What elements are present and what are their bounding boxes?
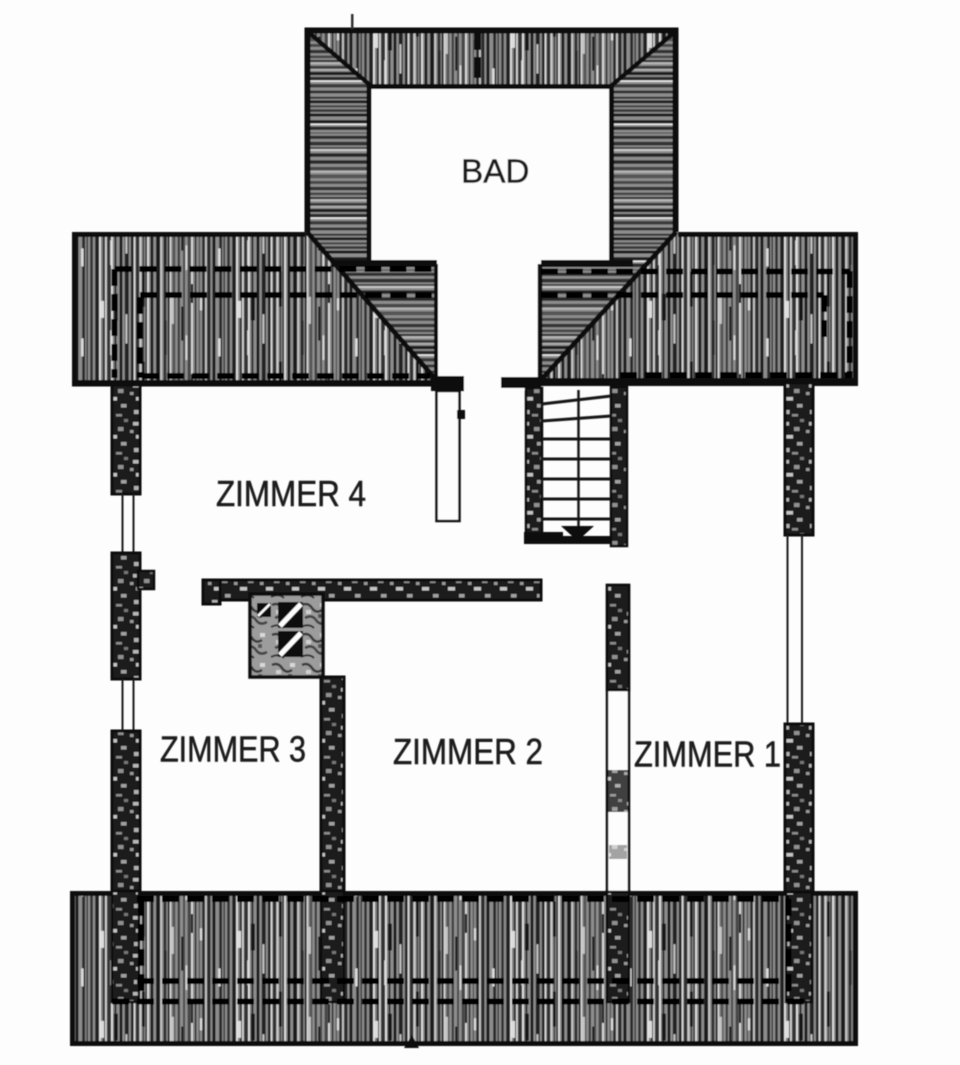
svg-text:ZIMMER 2: ZIMMER 2 bbox=[393, 731, 543, 772]
svg-text:ZIMMER 4: ZIMMER 4 bbox=[216, 473, 366, 514]
svg-text:BAD: BAD bbox=[461, 154, 530, 191]
svg-text:ZIMMER 3: ZIMMER 3 bbox=[160, 729, 306, 770]
svg-text:ZIMMER 1: ZIMMER 1 bbox=[634, 734, 781, 775]
